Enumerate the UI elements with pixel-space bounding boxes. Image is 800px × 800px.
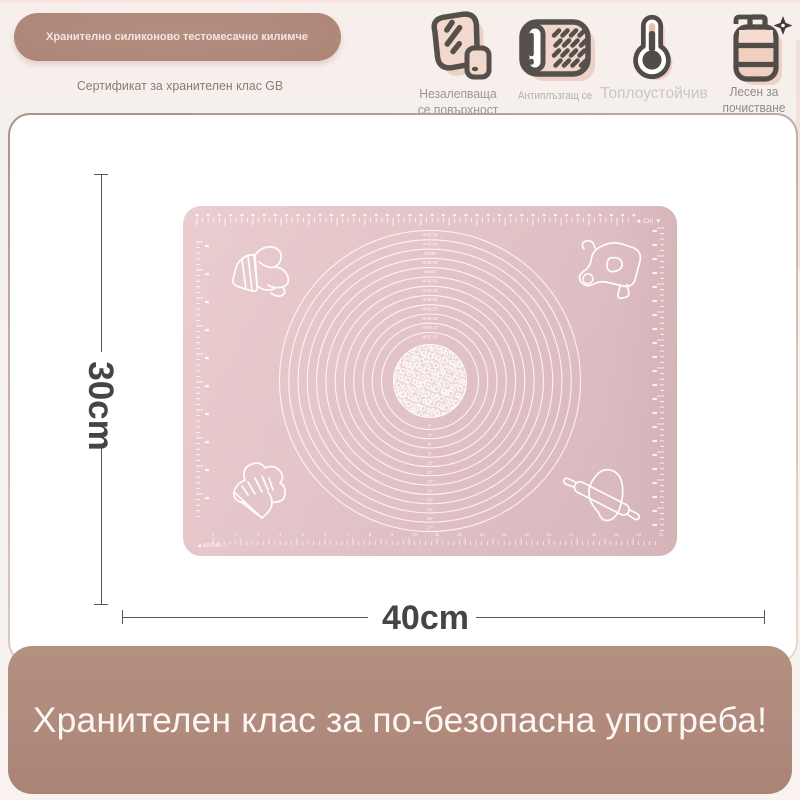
svg-text:27.5cm: 27.5cm [422,287,438,293]
svg-text:▲kitchen→: ▲kitchen→ [197,543,228,549]
svg-text:25.8cm: 25.8cm [422,296,438,302]
svg-text:33cm: 33cm [424,268,436,274]
svg-text:19: 19 [614,532,619,537]
svg-text:12: 12 [457,532,462,537]
svg-text:11": 11" [427,470,433,475]
svg-text:21: 21 [659,532,664,537]
svg-text:11: 11 [435,532,440,537]
svg-text:18: 18 [591,532,596,537]
svg-text:6": 6" [428,424,432,429]
svg-text:15.2cm: 15.2cm [422,333,438,339]
svg-text:22.8cm: 22.8cm [422,306,438,312]
svg-text:17": 17" [427,526,434,531]
svg-text:16": 16" [427,516,434,521]
svg-text:16: 16 [547,532,552,537]
svg-text:14": 14" [427,498,434,503]
svg-text:8": 8" [428,442,432,447]
svg-text:35.5cm: 35.5cm [422,259,438,265]
svg-text:14: 14 [502,532,507,537]
svg-text:40.5cm: 40.5cm [422,241,438,247]
svg-text:15": 15" [427,507,434,512]
svg-text:17.8cm: 17.8cm [422,324,438,330]
svg-text:38cm: 38cm [424,250,436,256]
svg-text:30.5cm: 30.5cm [422,278,438,284]
svg-text:17: 17 [569,532,574,537]
svg-text:15: 15 [524,532,529,537]
svg-text:42.5cm: 42.5cm [422,231,438,237]
svg-text:13": 13" [427,488,434,493]
svg-text:12": 12" [427,479,434,484]
svg-text:10": 10" [427,461,434,466]
svg-text:7": 7" [428,433,432,438]
svg-text:◄ Cm ▼: ◄ Cm ▼ [635,218,662,225]
svg-text:10: 10 [412,532,417,537]
svg-text:20.8cm: 20.8cm [422,315,438,321]
svg-text:20: 20 [636,532,641,537]
svg-text:9": 9" [428,451,432,456]
svg-text:13: 13 [479,532,484,537]
